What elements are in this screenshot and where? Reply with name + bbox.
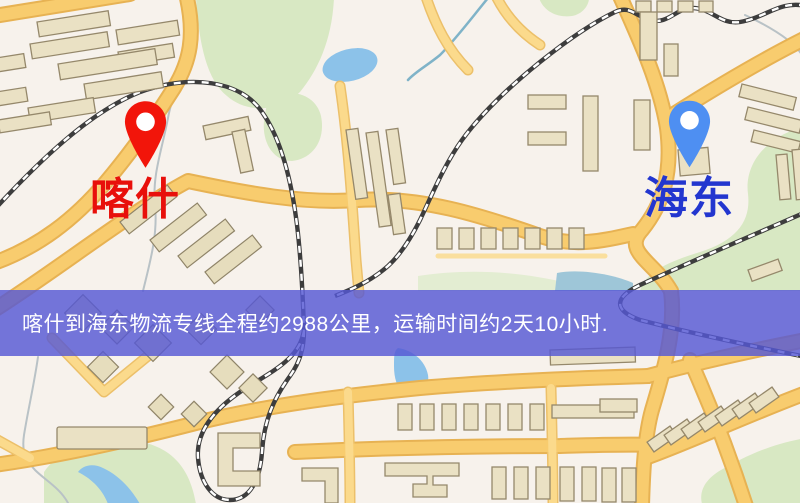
origin-marker-icon[interactable] [122, 99, 169, 170]
map-screenshot: 喀什 海东 喀什到海东物流专线全程约2988公里，运输时间约2天10小时. [0, 0, 800, 503]
route-info-text: 喀什到海东物流专线全程约2988公里，运输时间约2天10小时. [0, 308, 608, 338]
origin-place-label: 喀什 [90, 178, 180, 222]
route-info-banner: 喀什到海东物流专线全程约2988公里，运输时间约2天10小时. [0, 290, 800, 356]
destination-pin-shape [669, 101, 710, 168]
destination-marker-icon[interactable] [666, 98, 713, 170]
destination-pin-hole [680, 111, 699, 130]
origin-pin-hole [136, 112, 155, 131]
destination-place-label: 海东 [644, 177, 734, 221]
origin-pin-shape [125, 101, 166, 168]
map-canvas[interactable] [0, 0, 800, 503]
